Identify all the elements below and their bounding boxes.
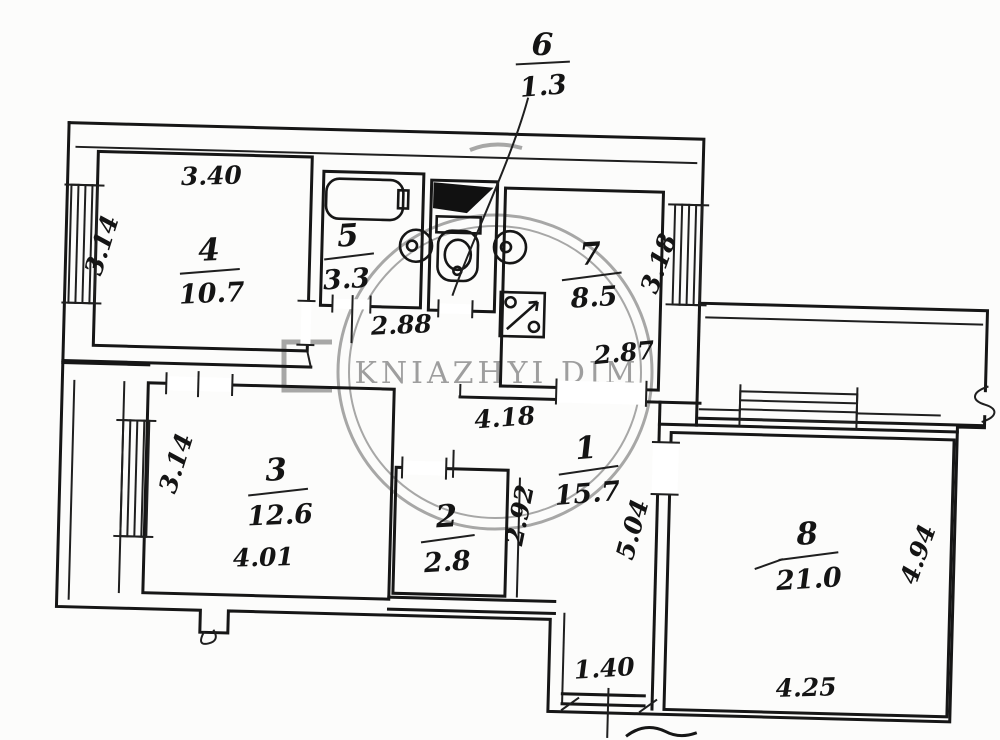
room-5-label: 5 3.3 — [319, 217, 375, 297]
room-8-label: 8 21.0 — [771, 514, 843, 597]
room-3-number: 3 — [265, 452, 288, 489]
dim-4-18: 4.18 — [473, 401, 536, 435]
dim-1-40: 1.40 — [573, 652, 636, 685]
dim-3-14-room4: 3.14 — [79, 212, 125, 279]
washbasin-icon — [400, 229, 433, 262]
stove-icon — [500, 292, 545, 337]
dim-2-92: 2.92 — [499, 482, 540, 548]
room-1-area: 15.7 — [553, 476, 621, 512]
room-2-area: 2.8 — [422, 545, 472, 579]
room-1-label: 1 15.7 — [550, 428, 622, 512]
floorplan-drawing: KNIAZHYI DIM — [0, 0, 1000, 740]
dim-3-18: 3.18 — [635, 230, 683, 297]
room-5-area: 3.3 — [322, 263, 371, 297]
label-underline — [559, 466, 617, 475]
dim-2-87: 2.87 — [592, 335, 657, 370]
room-1-number: 1 — [574, 430, 598, 468]
room-8-area: 21.0 — [774, 562, 843, 597]
dim-4-94: 4.94 — [894, 521, 942, 588]
label-underline — [422, 535, 474, 542]
label-underline — [325, 253, 373, 259]
label-underline — [181, 269, 239, 274]
dim-3-40: 3.40 — [181, 161, 243, 192]
dim-4-01: 4.01 — [233, 542, 295, 573]
label-underline — [249, 489, 307, 496]
window-room3-icon — [114, 420, 155, 537]
room-6-area: 1.3 — [519, 69, 568, 104]
room-2-number: 2 — [434, 498, 459, 535]
floorplan-scan-page: KNIAZHYI DIM — [0, 0, 1000, 740]
room-4-label: 4 10.7 — [176, 231, 245, 311]
room-4-area: 10.7 — [178, 277, 245, 311]
label-underline — [563, 273, 621, 281]
room-6-number: 6 — [531, 27, 554, 64]
room-8-number: 8 — [794, 516, 819, 553]
bathtub-icon — [326, 178, 409, 220]
room-4-number: 4 — [197, 232, 220, 269]
dim-3-14-room3: 3.14 — [153, 430, 199, 497]
room-5-number: 5 — [336, 217, 360, 254]
dim-4-25: 4.25 — [775, 672, 837, 703]
room-7-area: 8.5 — [569, 281, 619, 315]
watermark-bracket-icon — [470, 144, 522, 150]
fixtures — [323, 178, 548, 337]
room-2-label: 2 2.8 — [419, 497, 476, 579]
room-3-label: 3 12.6 — [244, 451, 313, 533]
cistern-shape-icon — [433, 182, 494, 214]
label-underline — [779, 552, 837, 560]
room-3-area: 12.6 — [247, 499, 314, 533]
dim-2-88: 2.88 — [369, 309, 432, 341]
room-7-number: 7 — [579, 236, 603, 273]
toilet-icon — [435, 216, 481, 281]
cutoff-handwriting-icon — [627, 727, 695, 737]
kitchen-sink-icon — [494, 231, 527, 264]
